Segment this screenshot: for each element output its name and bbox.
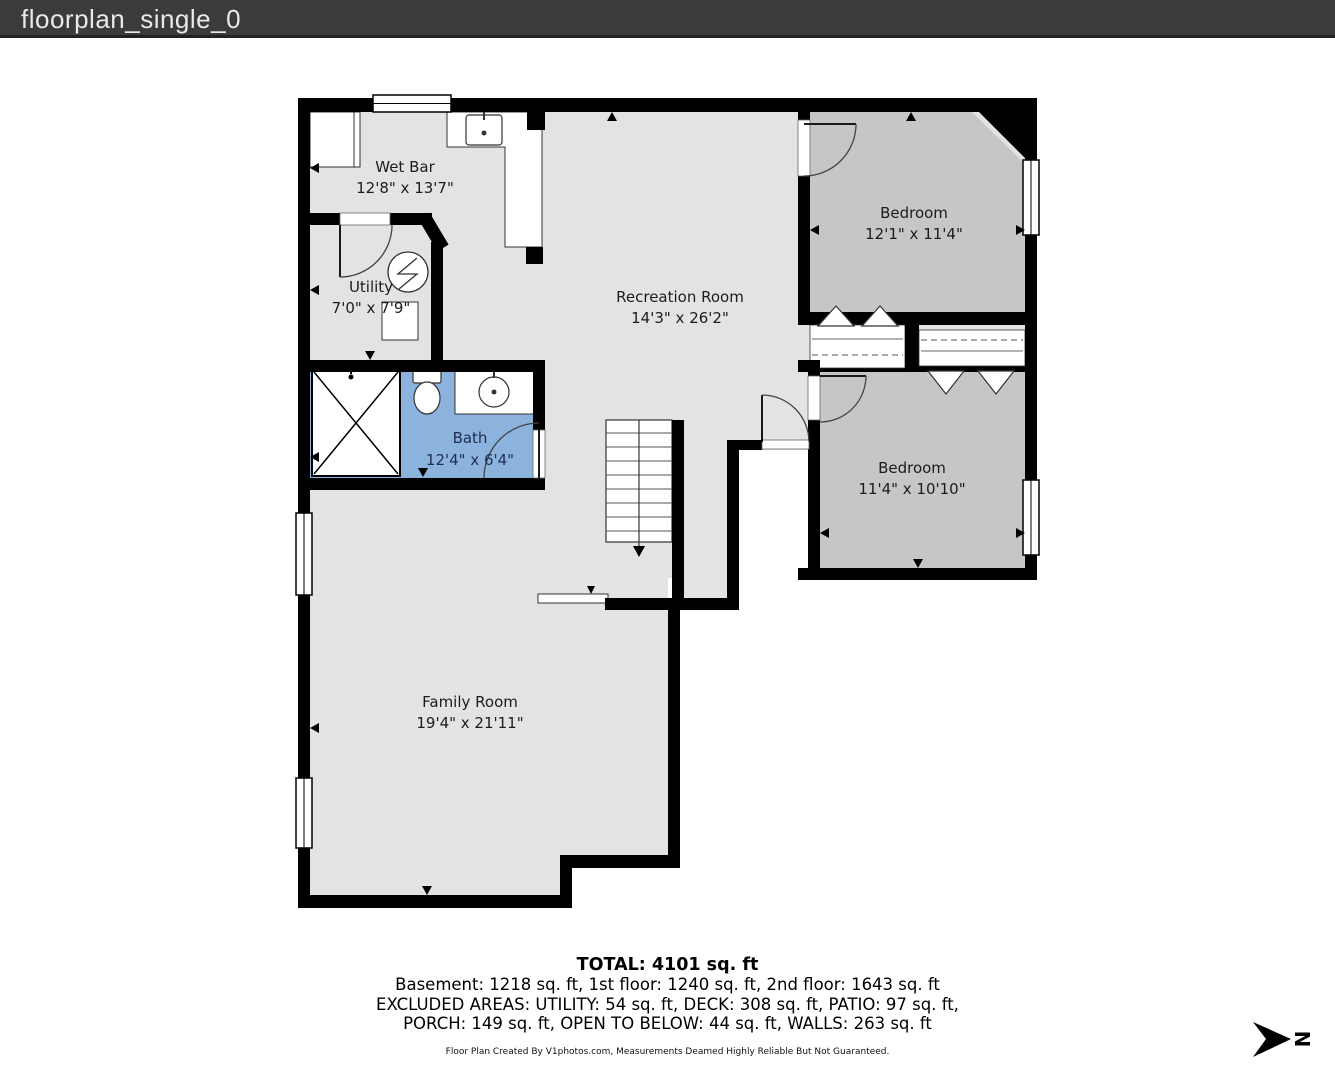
cabinet: [310, 112, 360, 167]
room-label-bath: Bath: [453, 429, 488, 447]
half-wall-ledge: [538, 594, 608, 603]
window: [296, 778, 312, 848]
room-dims-bedroom-2: 11'4" x 10'10": [858, 480, 965, 498]
floorplan-canvas: Wet Bar 12'8" x 13'7" Utility 7'0" x 7'9…: [0, 0, 1335, 1080]
summary-line-2: EXCLUDED AREAS: UTILITY: 54 sq. ft, DECK…: [0, 995, 1335, 1015]
window: [373, 95, 451, 112]
summary-total: TOTAL: 4101 sq. ft: [0, 955, 1335, 975]
water-heater-icon: [388, 252, 428, 292]
footer-credit: Floor Plan Created By V1photos.com, Meas…: [0, 1047, 1335, 1057]
room-dims-wet-bar: 12'8" x 13'7": [356, 179, 454, 197]
room-label-bedroom-1: Bedroom: [880, 204, 948, 222]
room-dims-recreation: 14'3" x 26'2": [631, 309, 729, 327]
toilet-icon: [413, 370, 441, 414]
sink-icon: [455, 366, 539, 414]
room-label-family: Family Room: [422, 693, 518, 711]
room-label-utility: Utility: [349, 278, 393, 296]
room-label-recreation: Recreation Room: [616, 288, 744, 306]
window: [1023, 480, 1039, 555]
room-label-wet-bar: Wet Bar: [375, 158, 435, 176]
window: [1023, 160, 1039, 235]
room-dims-family: 19'4" x 21'11": [416, 714, 523, 732]
area-summary: TOTAL: 4101 sq. ft Basement: 1218 sq. ft…: [0, 955, 1335, 1057]
summary-line-1: Basement: 1218 sq. ft, 1st floor: 1240 s…: [0, 975, 1335, 995]
room-label-bedroom-2: Bedroom: [878, 459, 946, 477]
window: [296, 513, 312, 595]
summary-line-3: PORCH: 149 sq. ft, OPEN TO BELOW: 44 sq.…: [0, 1014, 1335, 1034]
counter-post: [526, 247, 543, 264]
room-dims-bath: 12'4" x 6'4": [426, 451, 514, 469]
room-dims-bedroom-1: 12'1" x 11'4": [865, 225, 963, 243]
shower-icon: [312, 364, 400, 476]
room-dims-utility: 7'0" x 7'9": [332, 299, 411, 317]
